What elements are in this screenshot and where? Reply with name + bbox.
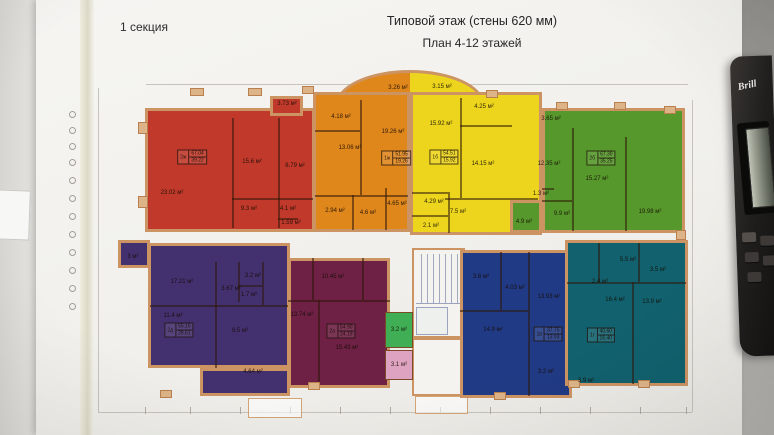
room-area-label: 4.29 м² bbox=[424, 199, 443, 205]
room-area-label: 4.65 м² bbox=[387, 201, 406, 207]
room-area-label: 1.7 м² bbox=[241, 292, 257, 298]
dimension-tick bbox=[590, 407, 591, 414]
wall-divider bbox=[632, 282, 634, 384]
wall-divider bbox=[362, 258, 364, 300]
floor-plan: 3.2 м²3.1 м²23.02 м²15.6 м²8.79 м²9.3 м²… bbox=[0, 0, 774, 435]
room-area-label: 3.6 м² bbox=[473, 274, 489, 280]
stamp-areas: 55.1628.61 bbox=[176, 324, 193, 337]
room-area-label: 4.9 м² bbox=[516, 219, 532, 225]
wall-divider bbox=[238, 285, 262, 287]
room-area-label: 14.15 м² bbox=[472, 161, 495, 167]
wall-pilaster bbox=[614, 102, 626, 110]
wall-divider bbox=[542, 200, 572, 202]
dimension-tick bbox=[490, 407, 491, 414]
room-area-label: 2.4 м² bbox=[592, 279, 608, 285]
wall-divider bbox=[232, 118, 234, 228]
stamp-type: 1г bbox=[588, 329, 598, 342]
room-area-label: 15.43 м² bbox=[336, 345, 359, 351]
room-area-label: 9.3 м² bbox=[241, 206, 257, 212]
dimension-line bbox=[98, 88, 99, 412]
dimension-line bbox=[98, 412, 692, 413]
stamp-type: 1б bbox=[430, 151, 441, 164]
room-area-label: 3.5 м² bbox=[650, 267, 666, 273]
wall-divider bbox=[262, 262, 264, 305]
stamp-type: 2б bbox=[587, 152, 598, 165]
grid-axis-bubble bbox=[69, 231, 76, 238]
apartment-navy bbox=[460, 250, 572, 398]
wall-divider bbox=[412, 192, 448, 194]
photo-frame: 1 секция Типовой этаж (стены 620 мм) Пла… bbox=[0, 0, 774, 435]
grid-axis-bubble bbox=[69, 195, 76, 202]
stamp-areas: 54.5115.92 bbox=[441, 151, 458, 164]
room-area-label: 3.65 м² bbox=[541, 116, 560, 122]
stamp-areas: 67.3035.25 bbox=[598, 152, 615, 165]
dimension-line bbox=[692, 100, 693, 412]
wall-divider bbox=[460, 310, 528, 312]
apartment-stamp: 2б67.3035.25 bbox=[586, 151, 615, 166]
apartment-stamp: 1г40.6016.40 bbox=[587, 328, 615, 343]
wall-pilaster bbox=[138, 122, 148, 134]
stamp-areas: 67.0439.22 bbox=[189, 151, 206, 164]
apartment-stamp: 2д55.1628.61 bbox=[164, 323, 193, 338]
wall-divider bbox=[315, 130, 360, 132]
corridor bbox=[412, 338, 465, 396]
stamp-living-area: 19.26 bbox=[393, 158, 410, 165]
room-area-label: 16.4 м² bbox=[605, 297, 624, 303]
stamp-living-area: 16.40 bbox=[598, 335, 615, 342]
wall-divider bbox=[625, 137, 627, 231]
wall-pilaster bbox=[160, 390, 172, 398]
stamp-areas: 40.6016.40 bbox=[598, 329, 615, 342]
room-area-label: 4.18 м² bbox=[331, 114, 350, 120]
wall-divider bbox=[385, 188, 387, 230]
grid-axis-bubble bbox=[69, 249, 76, 256]
room-area-label: 3.26 м² bbox=[388, 85, 407, 91]
calculator-key bbox=[760, 235, 774, 245]
wall-divider bbox=[572, 128, 574, 231]
room-area-label: 1.59 м² bbox=[281, 220, 300, 226]
room-area-label: 4.1 м² bbox=[280, 206, 296, 212]
room-area-label: 11.4 м² bbox=[163, 313, 182, 319]
grid-axis-bubble bbox=[69, 267, 76, 274]
wall-pilaster bbox=[638, 380, 650, 388]
stamp-areas: 54.9024.19 bbox=[338, 325, 355, 338]
stamp-living-area: 28.61 bbox=[176, 330, 193, 337]
wall-pilaster bbox=[248, 88, 262, 96]
porch-outline bbox=[415, 396, 468, 414]
apartment-green bbox=[510, 200, 542, 233]
stamp-areas: 37.7513.93 bbox=[545, 328, 562, 341]
room-area-label: 3 м² bbox=[127, 254, 138, 260]
room-area-label: 2.1 м² bbox=[423, 223, 439, 229]
room-area-label: 10.45 м² bbox=[322, 274, 345, 280]
room-area-label: 5.5 м² bbox=[620, 257, 636, 263]
stamp-type: 2а bbox=[327, 325, 338, 338]
room-area-label: 4.64 м² bbox=[243, 369, 262, 375]
room-area-label: 17.21 м² bbox=[171, 279, 194, 285]
grid-axis-bubble bbox=[69, 159, 76, 166]
stamp-living-area: 15.92 bbox=[441, 157, 458, 164]
stair-treads bbox=[416, 254, 461, 304]
wall-divider bbox=[238, 262, 240, 302]
calculator-key bbox=[742, 232, 756, 242]
wall-divider bbox=[288, 300, 390, 302]
apartment-stamp: 1в37.7513.93 bbox=[534, 327, 563, 342]
stamp-living-area: 24.19 bbox=[338, 331, 355, 338]
dimension-tick bbox=[640, 407, 641, 414]
wall-divider bbox=[567, 282, 686, 284]
room-area-label: 13.9 м² bbox=[642, 299, 661, 305]
room-area-label: 2.94 м² bbox=[325, 208, 344, 214]
wall-pilaster bbox=[190, 88, 204, 96]
dimension-tick bbox=[340, 407, 341, 414]
wall-divider bbox=[215, 262, 217, 368]
grid-axis-bubble bbox=[69, 143, 76, 150]
grid-axis-bubble bbox=[69, 213, 76, 220]
apartment-stamp: 1ж51.9519.26 bbox=[381, 151, 411, 166]
room-area-label: 15.6 м² bbox=[242, 159, 261, 165]
calculator-key bbox=[763, 255, 774, 265]
room-area-label: 3.1 м² bbox=[391, 362, 407, 368]
stamp-living-area: 13.93 bbox=[545, 334, 562, 341]
wall-pilaster bbox=[138, 196, 148, 208]
room-area-label: 7.5 м² bbox=[450, 209, 466, 215]
room-area-label: 9.5 м² bbox=[232, 328, 248, 334]
dimension-tick bbox=[240, 407, 241, 414]
wall-pilaster bbox=[676, 230, 686, 240]
grid-axis-bubble bbox=[69, 177, 76, 184]
apartment-stamp: 2ж67.0439.22 bbox=[177, 150, 207, 165]
room-area-label: 13.06 м² bbox=[339, 145, 362, 151]
wall-divider bbox=[412, 215, 448, 217]
stamp-type: 1в bbox=[535, 328, 545, 341]
room-area-label: 9.9 м² bbox=[554, 211, 570, 217]
wall-divider bbox=[352, 195, 354, 230]
room-area-label: 15.27 м² bbox=[586, 176, 609, 182]
wall-divider bbox=[542, 188, 554, 190]
wall-divider bbox=[150, 305, 288, 307]
elevator-shaft bbox=[416, 307, 448, 335]
dimension-tick bbox=[540, 407, 541, 414]
wall-divider bbox=[232, 198, 313, 200]
wall-divider bbox=[315, 195, 408, 197]
wall-divider bbox=[598, 243, 600, 282]
wall-pilaster bbox=[494, 392, 506, 400]
apartment-stamp: 1б54.5115.92 bbox=[429, 150, 458, 165]
room-area-label: 12.35 м² bbox=[538, 161, 561, 167]
calculator-key bbox=[747, 272, 761, 282]
calculator-key bbox=[745, 252, 759, 262]
room-area-label: 19.26 м² bbox=[382, 129, 405, 135]
stamp-areas: 51.9519.26 bbox=[393, 152, 410, 165]
room-area-label: 3.67 м² bbox=[221, 286, 240, 292]
room-area-label: 13.74 м² bbox=[291, 312, 314, 318]
calculator-brand-label: Brill bbox=[737, 78, 758, 93]
room-area-label: 3.15 м² bbox=[432, 84, 451, 90]
stamp-type: 1ж bbox=[382, 152, 393, 165]
room-area-label: 19.98 м² bbox=[639, 209, 662, 215]
dimension-tick bbox=[686, 407, 687, 414]
wall-divider bbox=[318, 300, 320, 386]
dimension-tick bbox=[390, 407, 391, 414]
wall-divider bbox=[500, 252, 502, 310]
wall-divider bbox=[638, 243, 640, 282]
calculator-screen bbox=[745, 127, 774, 209]
apartment-red bbox=[145, 108, 315, 232]
apartment-stamp: 2а54.9024.19 bbox=[326, 324, 355, 339]
room-area-label: 3.73 м² bbox=[277, 101, 296, 107]
room-area-label: 4.03 м² bbox=[505, 285, 524, 291]
room-area-label: 4.25 м² bbox=[474, 104, 493, 110]
dimension-tick bbox=[145, 407, 146, 414]
stamp-type: 2д bbox=[165, 324, 176, 337]
stamp-living-area: 39.22 bbox=[189, 157, 206, 164]
grid-axis-bubble bbox=[69, 285, 76, 292]
room-area-label: 13.93 м² bbox=[538, 294, 561, 300]
room-area-label: 1.3 м² bbox=[533, 191, 549, 197]
wall-divider bbox=[312, 258, 314, 300]
wall-pilaster bbox=[556, 102, 568, 110]
wall-pilaster bbox=[664, 106, 676, 114]
wall-pilaster bbox=[308, 382, 320, 390]
porch-outline bbox=[248, 398, 302, 418]
calculator-display bbox=[737, 121, 774, 215]
grid-axis-bubble bbox=[69, 127, 76, 134]
wall-pilaster bbox=[486, 90, 498, 98]
wall-divider bbox=[528, 252, 530, 396]
room-area-label: 23.02 м² bbox=[161, 190, 184, 196]
room-area-label: 3.2 м² bbox=[538, 369, 554, 375]
grid-axis-bubble bbox=[69, 111, 76, 118]
wall-divider bbox=[460, 98, 462, 198]
room-area-label: 15.92 м² bbox=[430, 121, 453, 127]
room-area-label: 3.2 м² bbox=[245, 273, 261, 279]
wall-pilaster bbox=[302, 86, 314, 94]
grid-axis-bubble bbox=[69, 303, 76, 310]
room-area-label: 4.6 м² bbox=[360, 210, 376, 216]
stamp-type: 2ж bbox=[178, 151, 189, 164]
room-area-label: 8.79 м² bbox=[285, 163, 304, 169]
dimension-tick bbox=[190, 407, 191, 414]
stamp-living-area: 35.25 bbox=[598, 158, 615, 165]
room-area-label: 14.9 м² bbox=[483, 327, 502, 333]
room-area-label: 3.9 м² bbox=[578, 378, 594, 384]
wall-divider bbox=[460, 125, 512, 127]
room-area-label: 3.2 м² bbox=[391, 327, 407, 333]
